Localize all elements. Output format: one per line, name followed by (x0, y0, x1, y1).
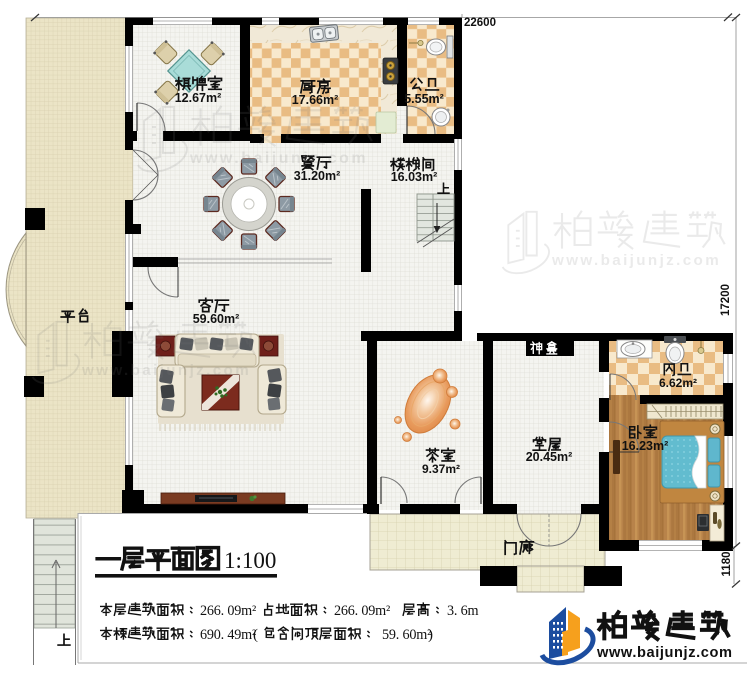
svg-text:9.37m²: 9.37m² (422, 462, 460, 476)
svg-text:16.23m²: 16.23m² (622, 439, 669, 453)
svg-text:6.62m²: 6.62m² (659, 376, 697, 390)
svg-text:5.55m²: 5.55m² (404, 92, 444, 106)
svg-text:22600: 22600 (464, 17, 496, 29)
svg-text:17.66m²: 17.66m² (292, 93, 339, 107)
svg-text:266. 09m²: 266. 09m² (334, 603, 390, 619)
svg-text:(: ( (253, 627, 258, 643)
svg-text:www.baijunjz.com: www.baijunjz.com (596, 645, 733, 661)
svg-text:3. 6m: 3. 6m (447, 603, 478, 619)
svg-text:266. 09m²: 266. 09m² (200, 603, 256, 619)
svg-text:12.67m²: 12.67m² (175, 91, 222, 105)
svg-text:): ) (428, 627, 433, 643)
svg-text:www.baijunjz.com: www.baijunjz.com (189, 150, 368, 167)
svg-text:690. 49m²: 690. 49m² (200, 627, 256, 643)
svg-text:1:100: 1:100 (224, 548, 276, 573)
svg-text:16.03m²: 16.03m² (391, 170, 438, 184)
svg-text:1180: 1180 (721, 552, 733, 577)
svg-text:www.baijunjz.com: www.baijunjz.com (81, 362, 251, 379)
svg-text:31.20m²: 31.20m² (294, 169, 341, 183)
svg-text:59. 60m²: 59. 60m² (382, 627, 431, 643)
svg-text:17200: 17200 (720, 284, 732, 316)
svg-text:20.45m²: 20.45m² (526, 450, 573, 464)
svg-text:www.baijunjz.com: www.baijunjz.com (551, 252, 721, 269)
